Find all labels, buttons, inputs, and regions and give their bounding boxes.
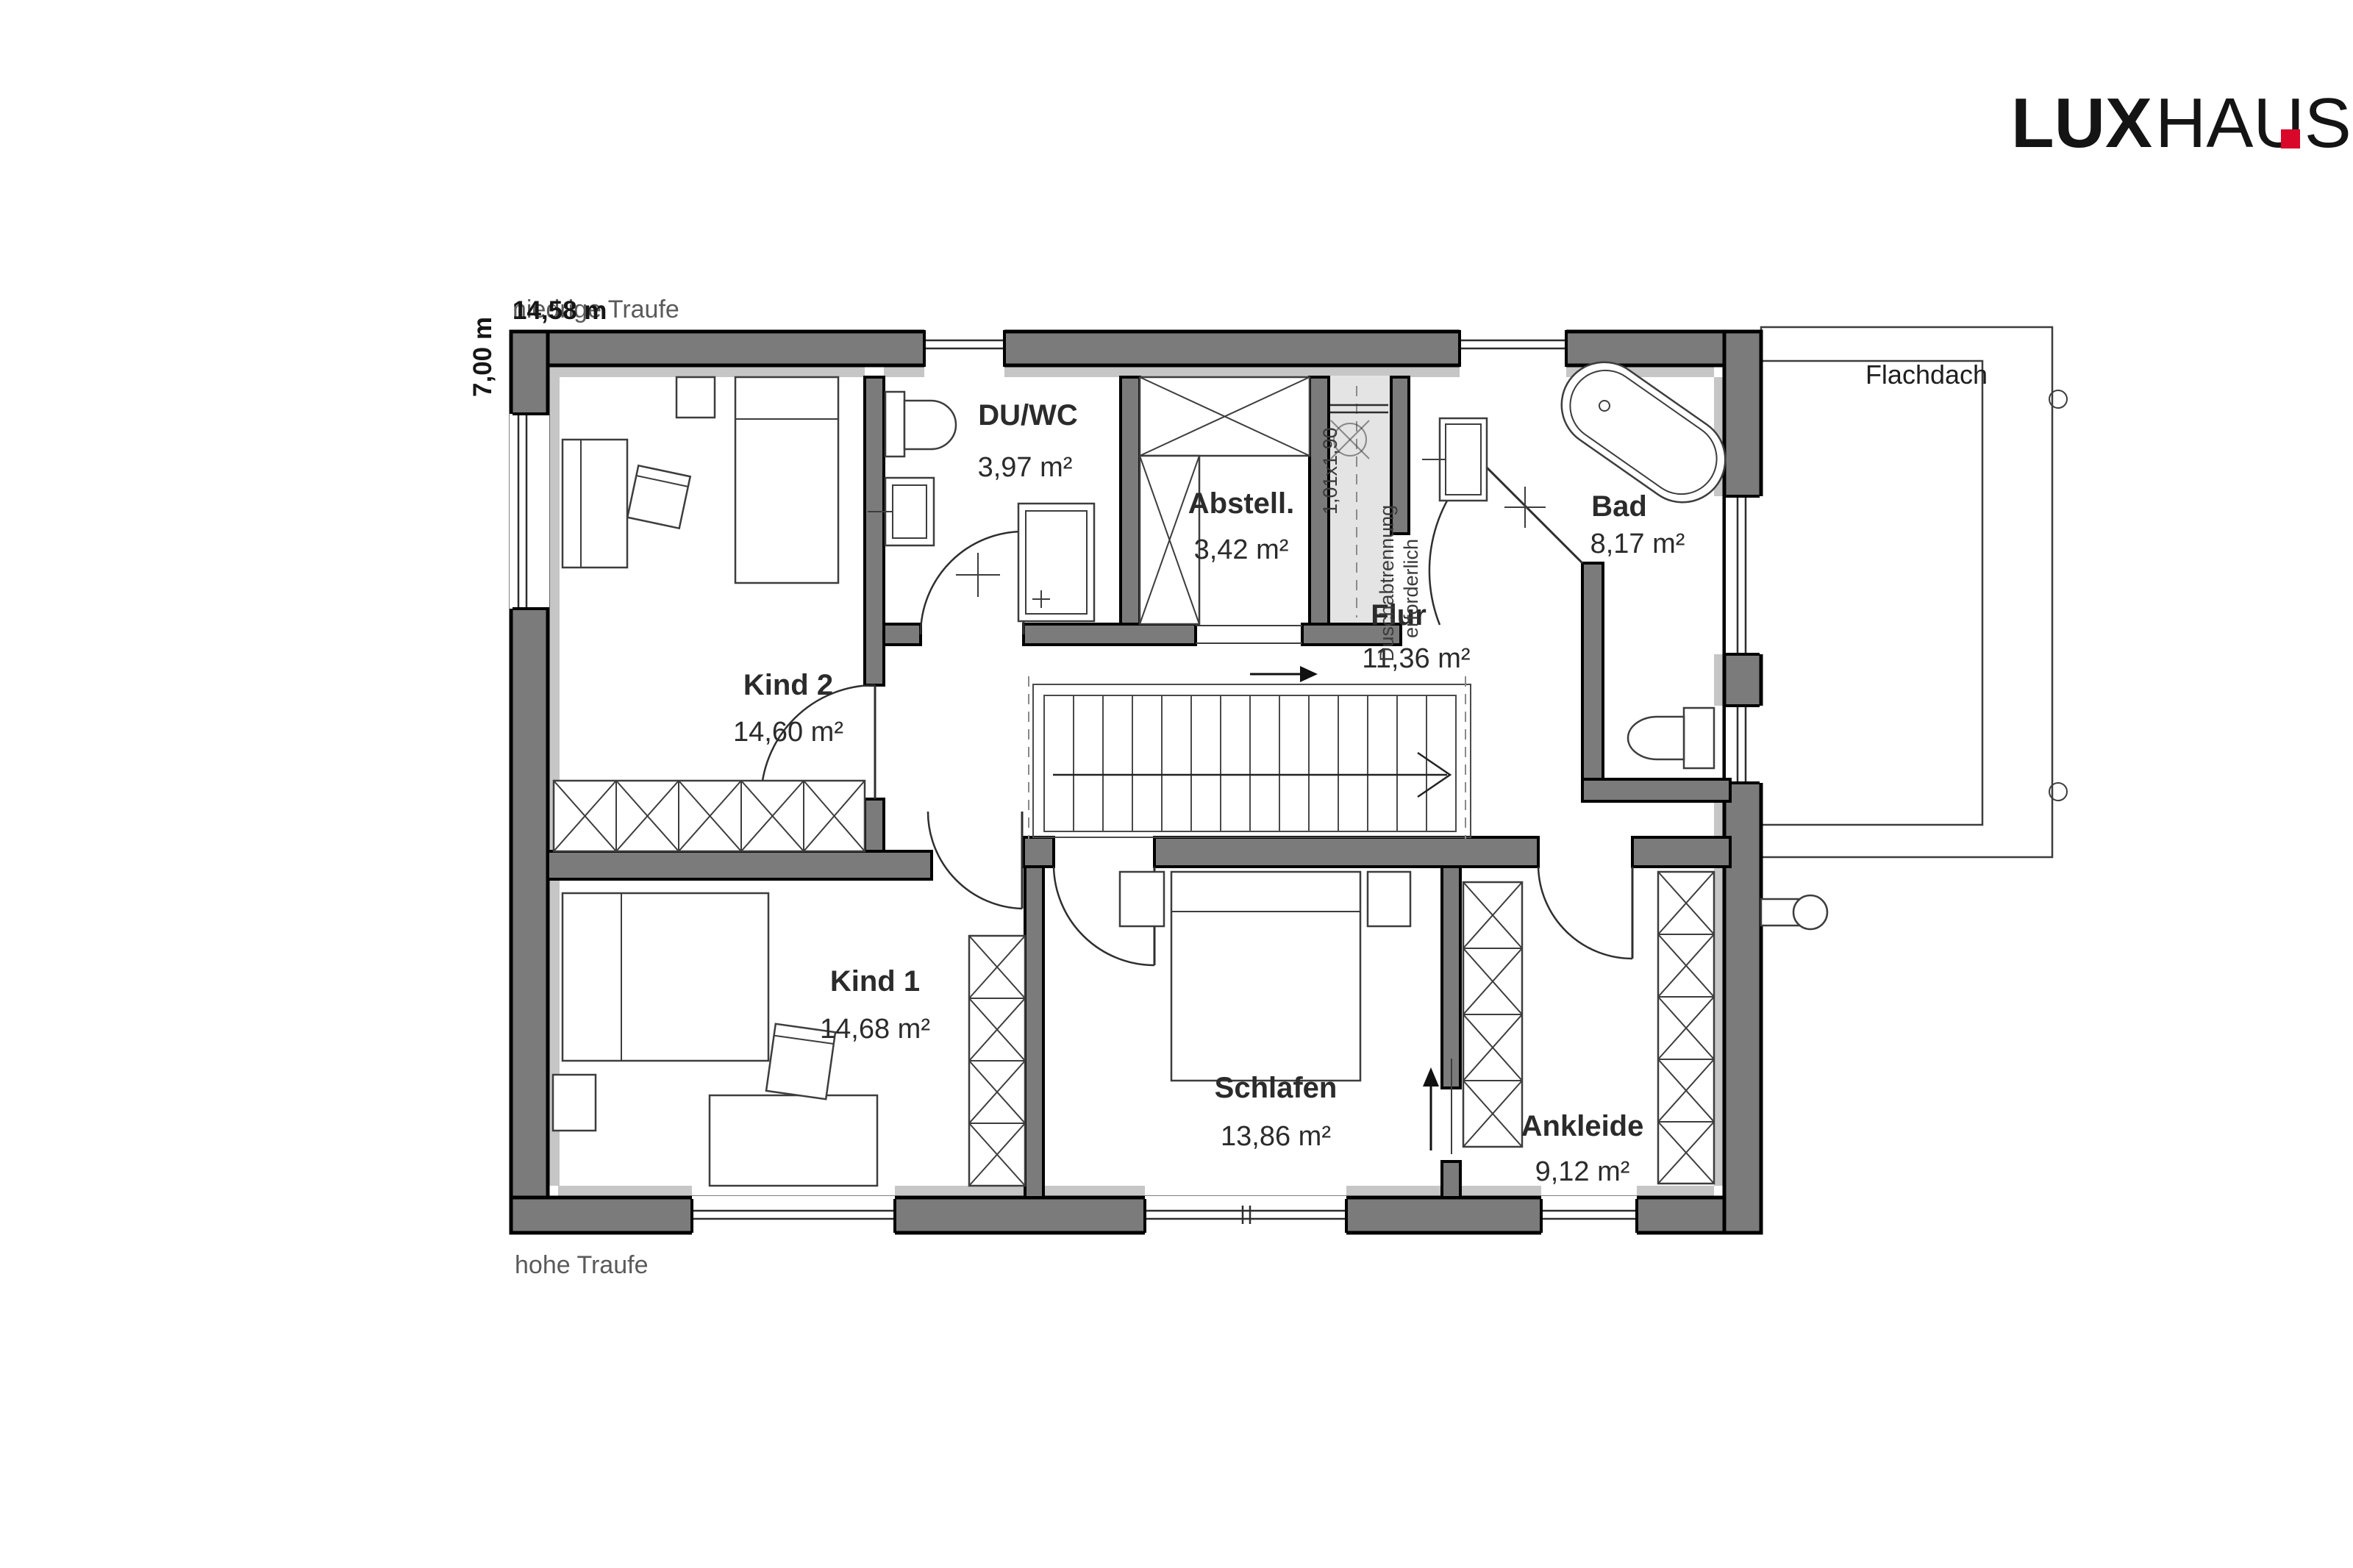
shower-tray-duwc [1018,504,1094,621]
shower-note-line1: Duschabtrennung [1376,505,1398,662]
room-label-abstell: Abstell. 3,42 m² [1188,487,1294,565]
room-label-schlafen: Schlafen 13,86 m² [1215,1072,1338,1152]
flat-roof-outline: Flachdach [1761,327,2067,857]
shower-size-label: 1,01x1,90 [1319,427,1341,515]
svg-text:13,86 m²: 13,86 m² [1221,1121,1331,1152]
floorplan-drawing: Flachdach [0,0,2353,1568]
shower-note-line2: erforderlich [1400,539,1422,638]
svg-text:LUXHAUS: LUXHAUS [2011,84,2352,162]
sink-icon-bad [1422,418,1487,501]
svg-text:Kind 2: Kind 2 [743,669,833,701]
nightstand-schlafen-right [1368,872,1410,926]
svg-text:9,12 m²: 9,12 m² [1535,1156,1630,1187]
room-label-ankleide: Ankleide 9,12 m² [1521,1110,1644,1187]
width-dimension: 14,58 m [513,296,607,325]
floorplan-canvas: Flachdach [0,0,2353,1568]
svg-text:Bad: Bad [1591,490,1647,523]
wardrobe-ankleide-left [1463,882,1522,1147]
door-kind1 [928,812,1022,909]
svg-text:8,17 m²: 8,17 m² [1590,529,1685,559]
svg-text:Ankleide: Ankleide [1521,1110,1644,1142]
room-label-kind2: Kind 2 14,60 m² [733,669,843,748]
svg-text:3,42 m²: 3,42 m² [1194,534,1289,565]
svg-text:3,97 m²: 3,97 m² [978,452,1073,483]
luxhaus-logo: LUXHAUS [2011,84,2352,162]
nightstand-kind1 [553,1075,596,1131]
toilet-icon-bad [1628,708,1714,768]
flur-entry-arrow [1250,666,1318,682]
svg-text:DU/WC: DU/WC [978,399,1078,432]
wardrobe-ankleide-right [1658,872,1714,1184]
nightstand-schlafen-left [1120,872,1164,926]
drain-outlet [1761,895,1827,929]
desk-kind2 [563,440,627,568]
svg-text:14,60 m²: 14,60 m² [733,717,843,748]
height-dimension: 7,00 m [468,317,497,397]
bed-schlafen [1171,872,1360,1081]
closet-kind2 [554,781,865,851]
svg-text:Kind 1: Kind 1 [830,965,920,998]
opening-abstell [1196,626,1302,643]
flat-roof-label: Flachdach [1865,359,1988,390]
room-label-duwc: DU/WC 3,97 m² [978,399,1078,483]
desk-kind1 [710,1095,877,1186]
chair-kind2 [627,465,690,528]
nightstand-kind2 [676,377,715,418]
stair-direction-arrow [1053,753,1450,797]
closet-kind1 [969,936,1025,1186]
bed-kind1 [563,893,768,1061]
svg-text:Schlafen: Schlafen [1215,1072,1338,1104]
svg-text:14,68 m²: 14,68 m² [820,1014,930,1045]
eaves-bottom-label: hohe Traufe [515,1251,648,1279]
door-duwc [921,531,1024,634]
logo-text-bold: LUX [2011,84,2152,162]
bed-kind2 [735,377,838,583]
staircase [1029,676,1471,839]
toilet-icon-duwc [885,392,956,457]
logo-text-regular: HAUS [2155,84,2352,162]
svg-text:Abstell.: Abstell. [1188,487,1294,520]
door-ankleide [1538,867,1632,959]
logo-dot [2281,129,2300,148]
room-label-kind1: Kind 1 14,68 m² [820,965,930,1045]
